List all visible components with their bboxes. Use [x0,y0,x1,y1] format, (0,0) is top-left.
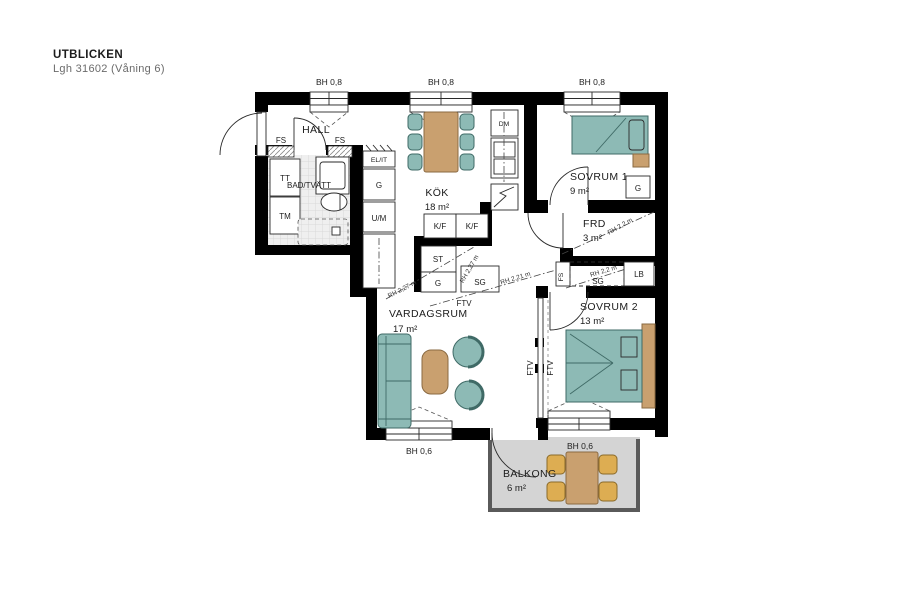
fs-cabinet [328,146,352,157]
entry-door [220,112,266,156]
wardrobe-label: G [435,279,441,288]
window-height-label: BH 0,8 [579,77,605,87]
window-height-label: BH 0,8 [316,77,342,87]
kitchen-area: 18 m² [425,202,449,213]
lb-label: LB [634,270,644,279]
kf-label: K/F [434,222,447,231]
um-label: U/M [372,214,387,223]
rh-annotation: RH 2,2 m [607,217,634,237]
project-title: UTBLICKEN [53,49,123,61]
ftv-label: FTV [526,360,535,376]
bathroom-label: BAD/TVÄTT [287,181,331,190]
living-label: VARDAGSRUM [389,308,467,320]
fs-cabinet [268,146,294,157]
title-block: UTBLICKEN Lgh 31602 (Våning 6) [53,49,165,75]
kf-label: K/F [466,222,479,231]
balcony-chair [599,455,617,474]
floor-drain [332,227,340,235]
dining-chair [408,134,422,150]
dining-chair [408,154,422,170]
balcony: BALKONG 6 m² BH 0,6 [488,437,640,512]
fs-label: FS [335,136,345,145]
kitchen-sink [491,138,518,178]
living-area: 17 m² [393,324,417,335]
wardrobe-label: G [635,184,641,193]
storage-label: FRD [583,218,606,230]
balcony-chair [547,482,565,501]
rh-annotation: RH 2,21 m [500,271,532,287]
kitchen: KÖK 18 m² DM K/F K/F [408,110,518,238]
floor-plan-drawing: UTBLICKEN Lgh 31602 (Våning 6) BALKONG 6… [0,0,900,600]
double-bed [566,330,642,402]
bedroom1-label: SOVRUM 1 [570,171,628,183]
window: BH 0,8 [310,77,348,127]
storage-door [528,213,573,248]
shower [298,219,348,245]
floor-plan-page: UTBLICKEN Lgh 31602 (Våning 6) BALKONG 6… [0,0,900,600]
dining-chair [408,114,422,130]
dining-chair [460,114,474,130]
bedroom2-area: 13 m² [580,316,604,327]
window-height-label: BH 0,6 [406,446,432,456]
ftv-label: FTV [546,360,555,376]
balcony-area: 6 m² [507,483,526,494]
balcony-chair [599,482,617,501]
headboard [642,324,655,408]
toilet [321,193,347,211]
balcony-window-height-label: BH 0,6 [567,441,593,451]
storage-room: FRD 3 m² [583,218,606,244]
sg-label: SG [474,278,486,287]
kitchen-label: KÖK [425,187,448,199]
washer-label: TM [279,212,291,221]
st-label: ST [433,255,443,264]
wardrobe-label: G [376,181,382,190]
fs-label: FS [276,136,286,145]
window-height-label: BH 0,8 [428,77,454,87]
dining-chair [460,134,474,150]
single-bed [572,116,648,154]
sg-label: SG [592,277,604,286]
bedroom2: SOVRUM 2 13 m² FTV FTV [526,298,655,418]
el-it-label: EL/IT [371,157,387,164]
bedroom1: SOVRUM 1 9 m² G [570,116,650,198]
balcony-table [566,452,598,504]
dining-chair [460,154,474,170]
living-room: VARDAGSRUM 17 m² [378,308,483,428]
bedroom2-label: SOVRUM 2 [580,301,638,313]
nightstand [633,154,649,167]
ftv-label: FTV [456,299,472,308]
dining-table [424,112,458,172]
hall-label: HALL [302,124,330,136]
coffee-table [422,350,448,394]
bedroom1-area: 9 m² [570,186,589,197]
hall-closets: EL/IT G U/M [363,145,395,288]
fs-label: FS [558,272,565,281]
storage-area: 3 m² [583,233,602,244]
apartment-subtitle: Lgh 31602 (Våning 6) [53,63,165,75]
partition-wall [538,298,543,418]
